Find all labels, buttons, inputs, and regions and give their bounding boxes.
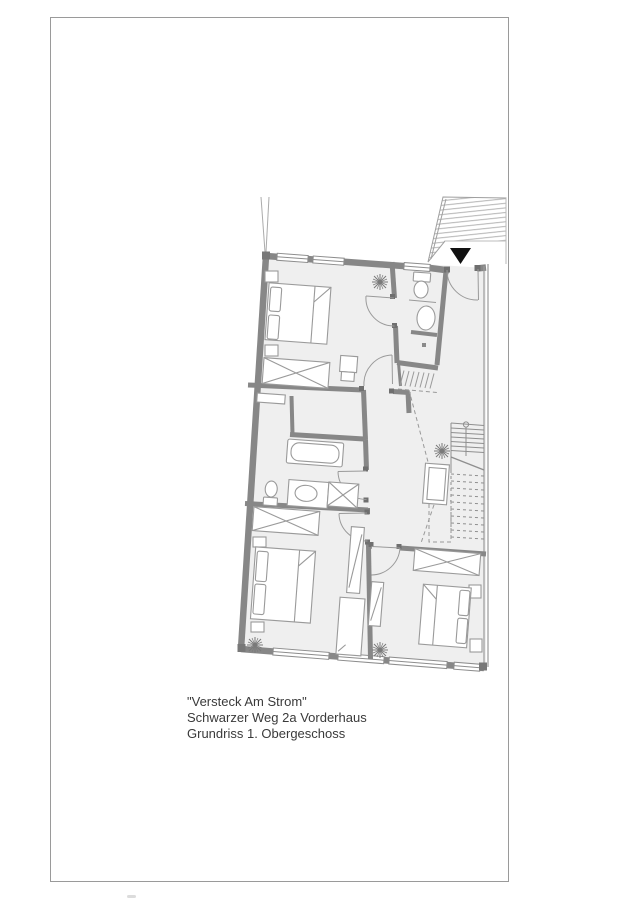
plant-icon [372, 274, 388, 290]
wardrobe [252, 507, 320, 536]
nightstand [265, 345, 278, 356]
window [454, 662, 480, 671]
vanity-sink [287, 480, 329, 509]
wardrobe [413, 548, 481, 575]
address-line: Schwarzer Weg 2a Vorderhaus [187, 710, 367, 726]
site-boundary-lines [261, 197, 269, 252]
nightstand [470, 639, 482, 652]
artifact-mark [127, 895, 136, 898]
double-bed [250, 547, 315, 623]
desk [336, 597, 365, 656]
nightstand [265, 271, 278, 282]
bathroom-cabinet [327, 482, 359, 508]
floor-plan-drawing [0, 0, 636, 900]
plant-icon [434, 443, 450, 459]
shelf [257, 393, 286, 404]
plan-name: Grundriss 1. Obergeschoss [187, 726, 367, 742]
window [404, 263, 430, 272]
bench-sofa [423, 463, 450, 505]
hall-furniture [423, 463, 450, 505]
plant-icon [247, 637, 263, 653]
bathtub-icon [286, 439, 344, 467]
nightstand [253, 537, 266, 547]
project-title: "Versteck Am Strom" [187, 694, 367, 710]
drawing-sheet: "Versteck Am Strom" Schwarzer Weg 2a Vor… [0, 0, 636, 900]
wardrobe [262, 358, 330, 389]
nightstand [251, 622, 264, 632]
double-bed [265, 283, 331, 344]
double-bed [419, 584, 472, 648]
entrance-arrow-icon [450, 248, 471, 264]
plant-icon [372, 642, 388, 658]
title-block: "Versteck Am Strom" Schwarzer Weg 2a Vor… [187, 694, 367, 742]
